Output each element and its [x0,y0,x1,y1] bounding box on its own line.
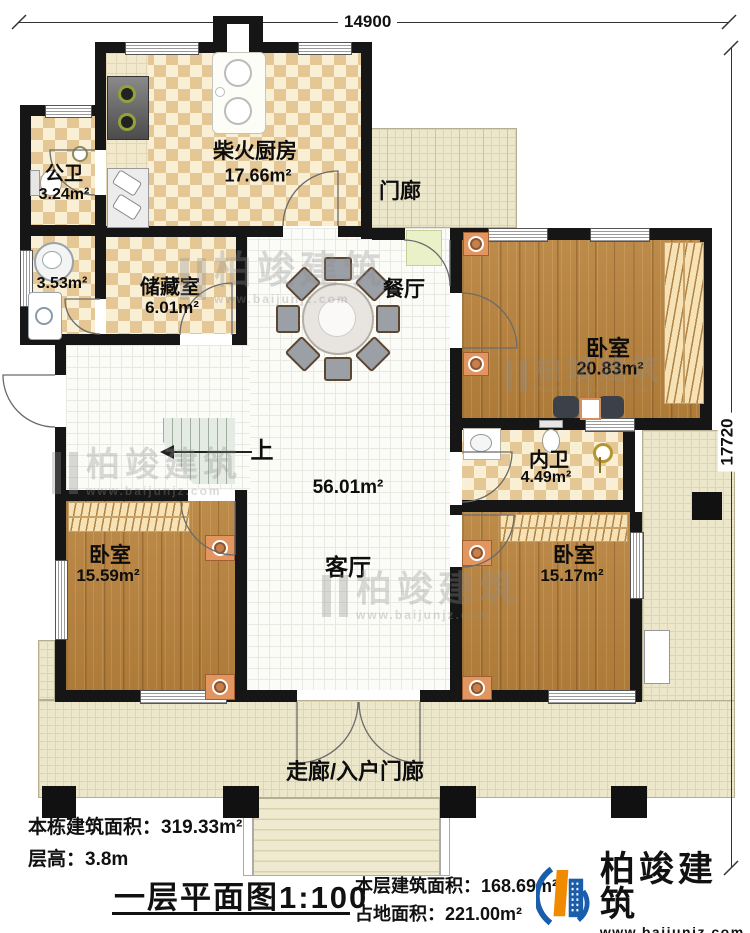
room-area-storage: 6.01m² [145,298,199,318]
total-area-value: 319.33m² [161,817,242,838]
floor-height: 层高：3.8m [28,844,128,871]
wall-segment [236,237,247,335]
floor-plan-canvas: 14900 17720 [0,0,750,933]
sink-basin [112,169,143,196]
room-label-kitchen: 柴火厨房 [213,135,297,165]
nightstand [463,232,489,256]
brand-logo: 柏竣建筑 www.baijunjz.com [536,852,750,933]
window [548,690,636,704]
land-area-label: 占地面积： [355,904,445,924]
brand-name: 柏竣建筑 [600,852,750,922]
washing-machine-icon [28,292,62,340]
wall-segment [633,418,712,430]
side-table-icon [580,398,601,420]
wall-segment [232,334,247,345]
right-dimension-value: 17720 [718,412,738,471]
floor-lamp-icon [593,443,613,463]
top-dimension-value: 14900 [338,12,397,32]
window [590,228,650,242]
room-area-inner-bath: 4.49m² [521,469,572,487]
window [585,418,635,432]
washer-drum [35,307,53,325]
nightstand [205,535,235,561]
wall-segment [450,430,462,452]
wall-segment [247,690,297,702]
wall-segment [95,334,180,345]
total-building-area: 本栋建筑面积：319.33m² [28,812,242,839]
floor-area-label: 本层建筑面积： [355,876,481,896]
room-area-living: 56.01m² [313,477,384,499]
wall-segment [462,500,623,512]
brand-website: www.baijunjz.com [600,924,750,933]
room-area-bedroom-se: 15.17m² [540,566,603,586]
room-label-porch: 门廊 [379,175,421,205]
window [125,42,199,55]
wall-segment [450,348,462,418]
wardrobe-rod [69,516,189,518]
sink-basin [112,193,143,220]
basin-inner [42,251,62,269]
room-label-dining: 餐厅 [383,273,425,303]
floor-height-value: 3.8m [85,849,128,870]
wardrobe-se [500,514,628,542]
wall-segment [55,345,66,375]
floor-area: 本层建筑面积：168.69m² [355,872,558,898]
wall-segment [20,225,95,236]
porch-column [692,492,722,520]
porch-column [611,786,647,818]
wall-segment [623,430,635,512]
land-area: 占地面积：221.00m² [355,900,522,926]
dining-chair [324,357,352,381]
wall-segment [450,505,462,515]
burner-icon [118,113,136,131]
chimney-notch [227,24,249,53]
wall-segment [450,567,462,702]
small-ring [215,87,225,97]
wall-segment [95,42,106,150]
plan-title: 一层平面图1:100 [114,872,368,917]
window [45,105,92,118]
kitchen-sink-icon [107,168,149,228]
land-area-value: 221.00m² [445,904,522,924]
stairs-up-label: 上 [251,431,274,465]
wall-segment [630,512,642,532]
entry-door-mat [406,230,442,266]
wall-segment [630,597,642,702]
room-label-corridor: 走廊/入户门廊 [286,754,424,786]
wall-segment [361,42,372,239]
dining-table-top [318,299,356,337]
armchair-icon [553,396,579,418]
wall-segment [63,490,188,501]
wall-segment [338,226,372,237]
dining-chair [276,305,300,333]
window [55,560,68,640]
dining-chair [324,257,352,281]
room-label-living: 客厅 [325,548,371,582]
floor-lamp-stem [599,457,601,473]
inner-bath-sink-icon [463,428,501,460]
wall-segment [372,228,405,240]
dining-chair [376,305,400,333]
room-label-storage: 储藏室 [140,271,200,300]
porch-left-strip [38,640,55,700]
wall-segment [546,228,590,240]
room-area-washroom: 3.53m² [37,275,88,293]
room-area-bedroom-sw: 15.59m² [76,566,139,586]
wall-segment [95,237,106,299]
nightstand [462,676,492,700]
wardrobe-sw [68,502,190,532]
wall-segment [648,228,712,240]
wall-segment [450,240,462,293]
wardrobe-ne [664,242,704,404]
nightstand [205,674,235,700]
entry-steps [253,798,440,876]
porch-column [440,786,476,818]
room-label-public-bath: 公卫 [45,159,83,186]
pot-ring [224,97,252,125]
toilet-tank [539,420,563,428]
room-label-bedroom-se: 卧室 [553,539,595,569]
pot-ring [224,59,252,87]
stove-icon [107,76,149,140]
total-area-label: 本栋建筑面积： [28,817,161,838]
plan-title-text: 一层平面图 [114,880,279,915]
burner-icon [118,85,136,103]
window [298,42,352,55]
wall-segment [235,490,247,702]
window [630,532,644,599]
brand-logo-icon [536,863,592,929]
window [488,228,548,242]
room-area-public-bath: 3.24m² [39,186,90,204]
armchair-icon [598,396,624,418]
wall-segment [55,690,140,702]
room-area-bedroom-ne: 20.83m² [576,359,643,380]
wood-stove-icon [212,52,266,134]
plan-title-underline [112,912,350,915]
ac-unit [644,630,670,684]
wardrobe-rod [683,243,685,403]
floor-height-label: 层高： [28,849,85,870]
nightstand [463,352,489,376]
basin-inner [470,434,492,452]
room-label-bedroom-sw: 卧室 [89,539,131,569]
room-area-kitchen: 17.66m² [224,166,291,187]
wardrobe-rod [501,527,627,529]
nightstand [462,540,492,566]
